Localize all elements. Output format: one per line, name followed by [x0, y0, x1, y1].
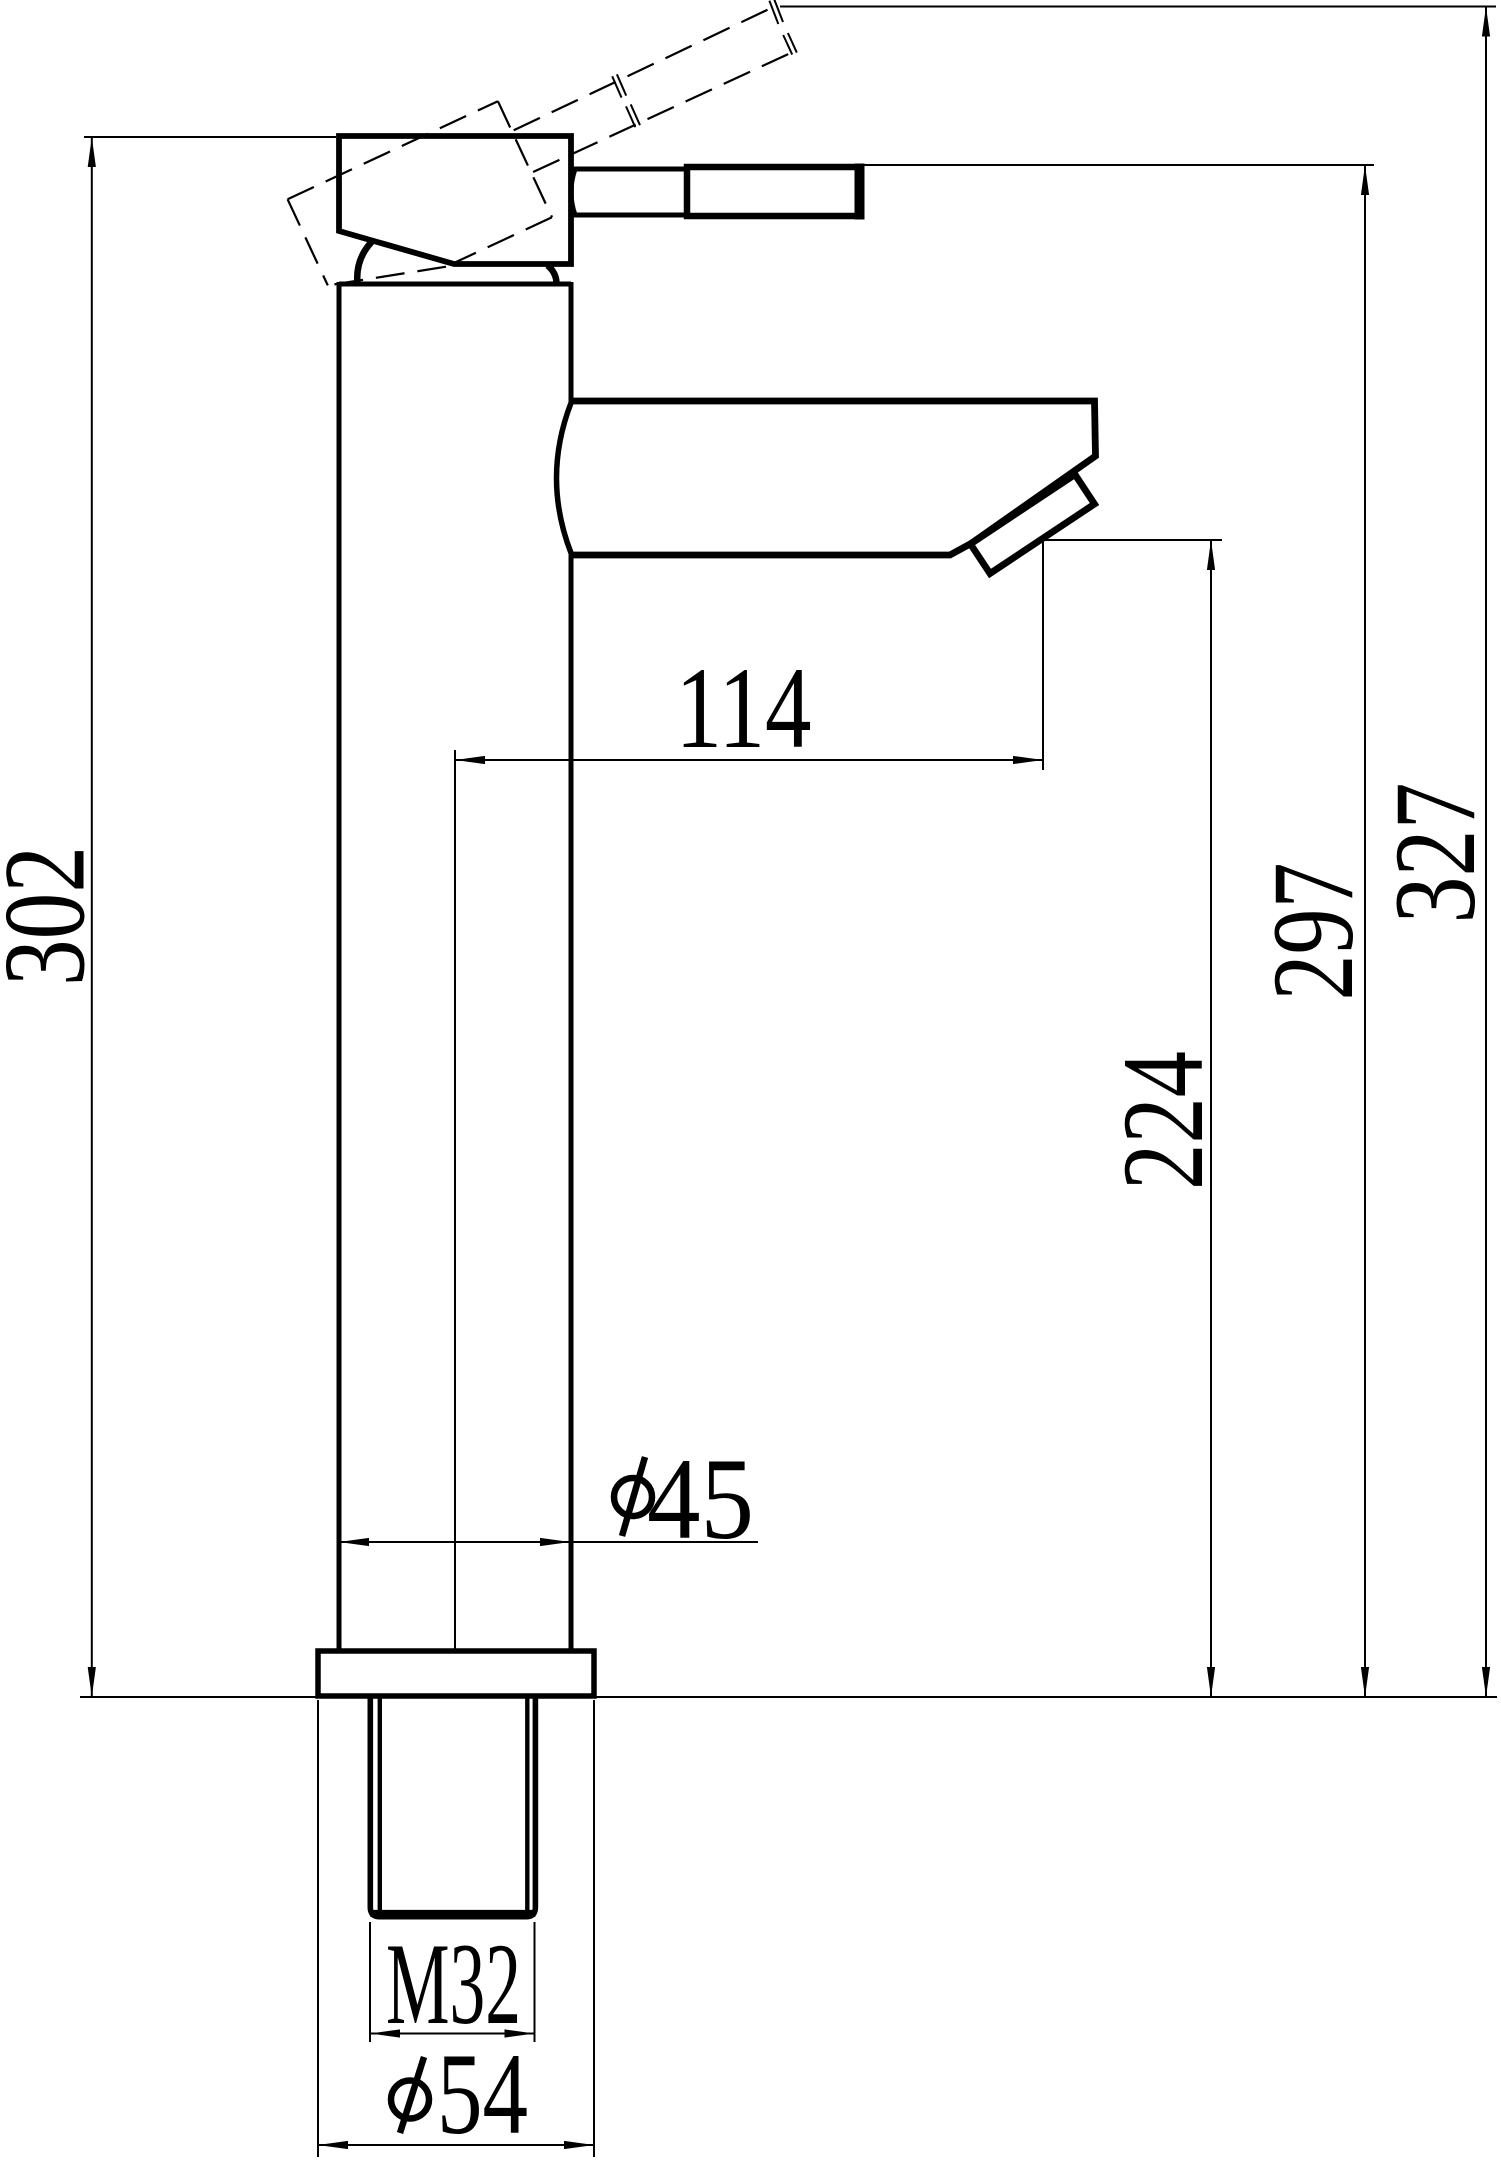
svg-text:54: 54: [437, 2030, 528, 2159]
svg-text:45: 45: [647, 1435, 754, 1564]
svg-text:297: 297: [1249, 863, 1378, 1001]
svg-text:302: 302: [0, 846, 109, 986]
svg-text:224: 224: [1099, 1051, 1228, 1190]
svg-text:114: 114: [676, 644, 812, 773]
svg-text:327: 327: [1371, 783, 1500, 924]
